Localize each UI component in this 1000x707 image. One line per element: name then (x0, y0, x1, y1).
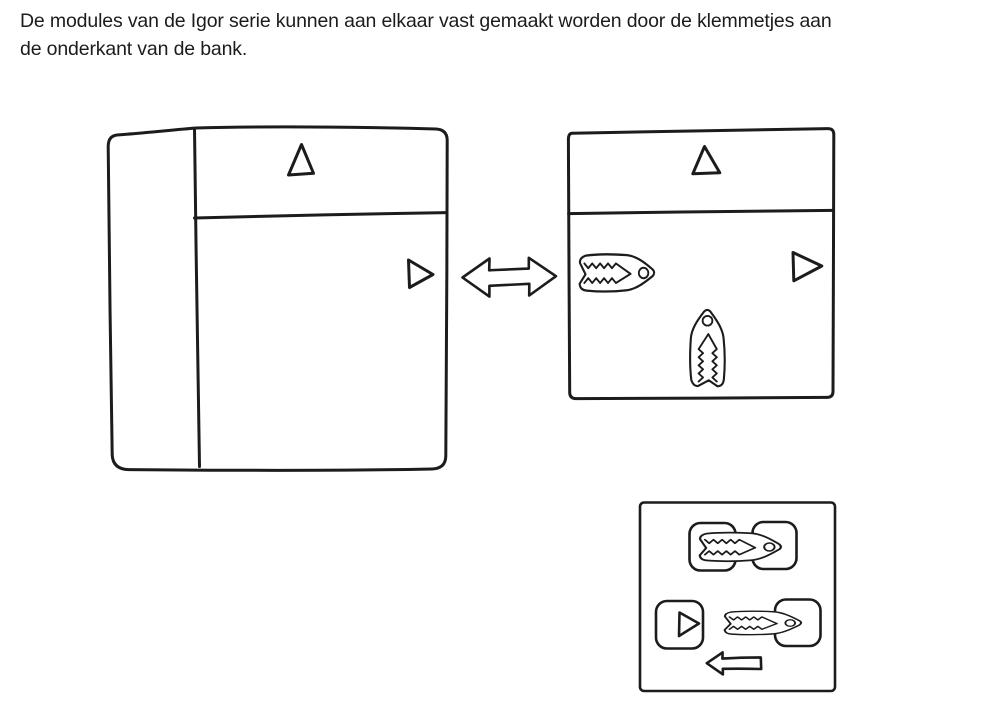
right-module-drawing (568, 129, 833, 399)
diagram-canvas (0, 0, 1000, 707)
double-arrow-icon (463, 258, 557, 297)
clip-detail-inset (640, 503, 835, 692)
instruction-page: De modules van de Igor serie kunnen aan … (0, 0, 1000, 707)
left-module-outline (108, 127, 447, 470)
left-module-drawing (108, 127, 447, 470)
